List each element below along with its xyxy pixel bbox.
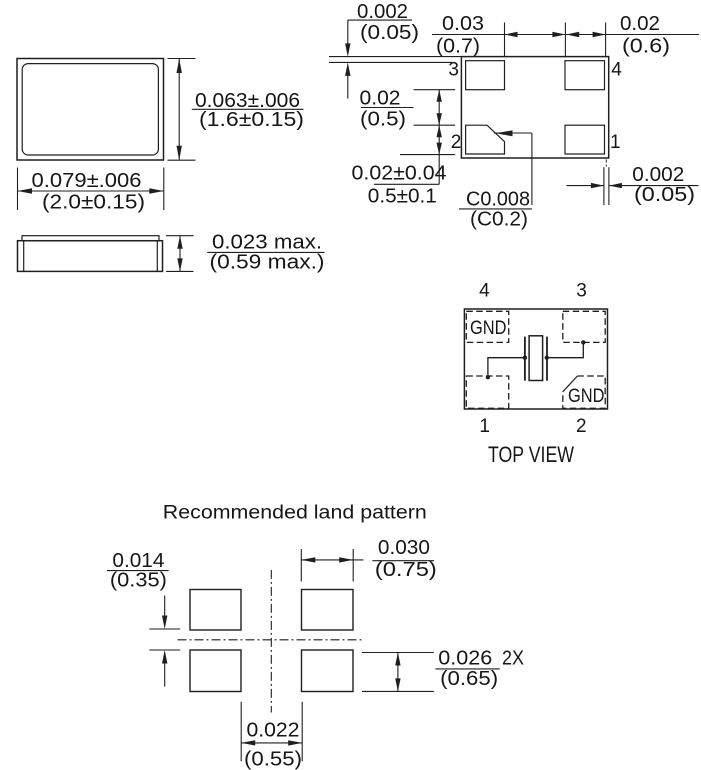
svg-text:2: 2 — [576, 416, 587, 437]
svg-text:0.03: 0.03 — [442, 13, 484, 35]
svg-text:0.02: 0.02 — [620, 13, 660, 35]
svg-text:0.030: 0.030 — [378, 537, 430, 559]
svg-text:(0.6): (0.6) — [622, 36, 670, 58]
svg-text:1: 1 — [479, 416, 490, 437]
svg-text:GND: GND — [568, 386, 605, 407]
svg-text:4: 4 — [611, 60, 622, 81]
svg-text:2: 2 — [451, 132, 462, 153]
svg-text:4: 4 — [479, 281, 490, 302]
svg-text:(0.75): (0.75) — [375, 559, 437, 581]
svg-text:(0.35): (0.35) — [110, 569, 167, 591]
svg-text:3: 3 — [576, 281, 587, 302]
svg-text:GND: GND — [470, 318, 507, 339]
svg-text:0.023 max.: 0.023 max. — [212, 232, 322, 254]
svg-text:0.079±.006: 0.079±.006 — [32, 170, 142, 192]
svg-text:0.02±0.04: 0.02±0.04 — [352, 162, 447, 184]
svg-text:0.022: 0.022 — [247, 720, 300, 742]
svg-text:1: 1 — [610, 132, 621, 153]
svg-text:(0.7): (0.7) — [436, 36, 480, 58]
svg-text:(0.05): (0.05) — [360, 22, 419, 44]
svg-text:(0.55): (0.55) — [244, 749, 302, 770]
svg-text:(2.0±0.15): (2.0±0.15) — [42, 192, 145, 214]
svg-text:0.026: 0.026 — [438, 648, 492, 670]
svg-text:C0.008: C0.008 — [466, 189, 530, 211]
svg-text:0.5±0.1: 0.5±0.1 — [368, 186, 437, 208]
svg-text:TOP VIEW: TOP VIEW — [488, 442, 574, 467]
svg-text:(0.5): (0.5) — [360, 109, 406, 131]
svg-text:(0.59 max.): (0.59 max.) — [210, 252, 325, 274]
svg-text:0.002: 0.002 — [632, 164, 684, 186]
svg-text:2X: 2X — [502, 648, 524, 670]
svg-text:(0.65): (0.65) — [440, 668, 498, 690]
svg-text:0.02: 0.02 — [360, 87, 401, 109]
svg-text:(1.6±0.15): (1.6±0.15) — [199, 109, 304, 131]
svg-text:Recommended land pattern: Recommended land pattern — [163, 502, 427, 523]
svg-text:(C0.2): (C0.2) — [470, 208, 528, 230]
svg-text:(0.05): (0.05) — [634, 184, 695, 206]
